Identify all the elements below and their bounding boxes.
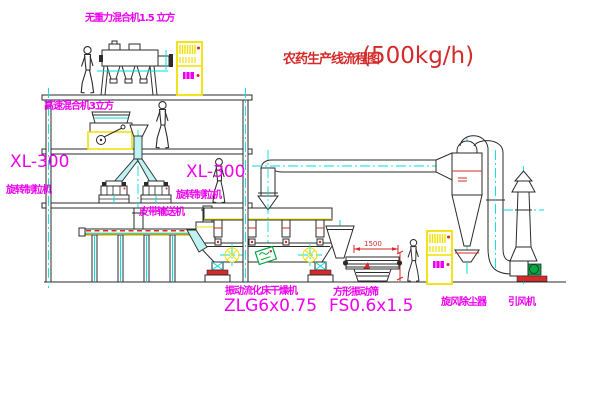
square-vibrating-sieve [326,220,403,281]
granulator-left-name-label: 旋转制粒机 [6,186,51,196]
belt-conveyor-label: 皮带输送机 [139,208,184,218]
dryer-springs [214,220,324,245]
process-flow-diagram: 农药生产线流程图 (500kg/h) 无重力混合机1.5 立方 高速混合机3立方… [0,0,600,403]
page-title-capacity: (500kg/h) [362,45,474,68]
gravity-free-mixer [97,41,173,95]
sieve-model-label: FS0.6x1.5 [329,298,413,315]
control-cabinet-top [177,42,202,95]
high-speed-mixer-label: 高速混合机3立方 [44,102,113,112]
gravity-mixer-label: 无重力混合机1.5 立方 [85,14,174,24]
person-icon [156,102,168,148]
granulator-left-model-label: XL-300 [10,154,69,171]
granulator-left [99,181,129,203]
sieve-dimension-label: 1500 [364,241,382,248]
fan-label: 引风机 [508,298,535,308]
dryer-legs [205,262,333,282]
belt-conveyor [79,208,207,282]
granulator-right [141,181,171,203]
induced-draft-fan [510,261,547,282]
person-icon [408,240,419,282]
dryer-model-label: ZLG6x0.75 [224,298,317,315]
granulator-right-model-label: XL-300 [186,164,245,181]
person-icon [81,47,93,93]
cyclone-label: 旋风除尘器 [441,298,486,308]
control-cabinet-right [427,231,452,284]
granulator-right-name-label: 旋转制粒机 [176,191,221,201]
